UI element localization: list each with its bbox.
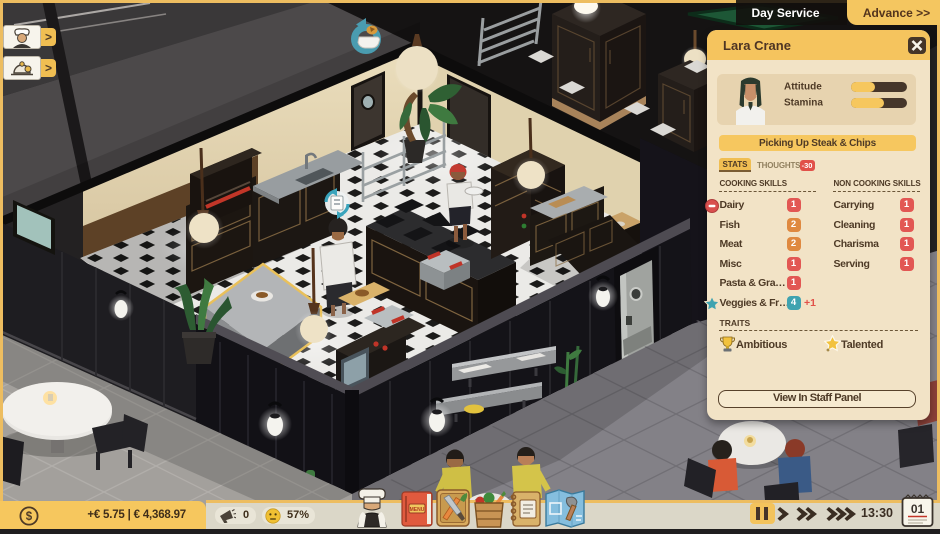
svg-text:$: $ (26, 511, 33, 523)
svg-text:01: 01 (911, 502, 925, 516)
svg-text:MENU: MENU (410, 507, 425, 513)
